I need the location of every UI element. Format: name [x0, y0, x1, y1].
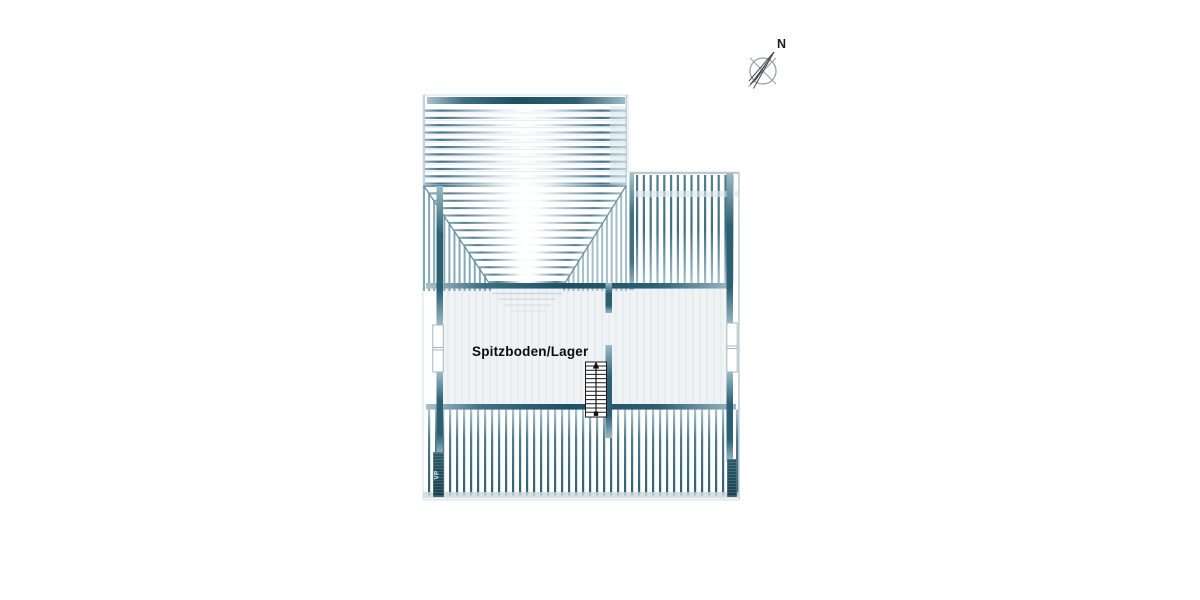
floorplan-canvas: Spitzboden/Lager N VP: [0, 0, 1200, 600]
room-label: Spitzboden/Lager: [472, 344, 588, 359]
staircase: [586, 362, 607, 418]
roof-rafters-bottom: [423, 410, 740, 501]
compass-north-label: N: [777, 37, 786, 51]
window-right: [727, 323, 737, 372]
compass-rose: [748, 52, 777, 89]
window-left: [433, 325, 443, 372]
watermark-left-text: VP: [435, 470, 441, 479]
floorplan-svg: [0, 0, 1200, 600]
watermark-right: [727, 459, 737, 497]
watermark-left: VP: [433, 452, 444, 497]
compass-needle: [748, 52, 775, 89]
